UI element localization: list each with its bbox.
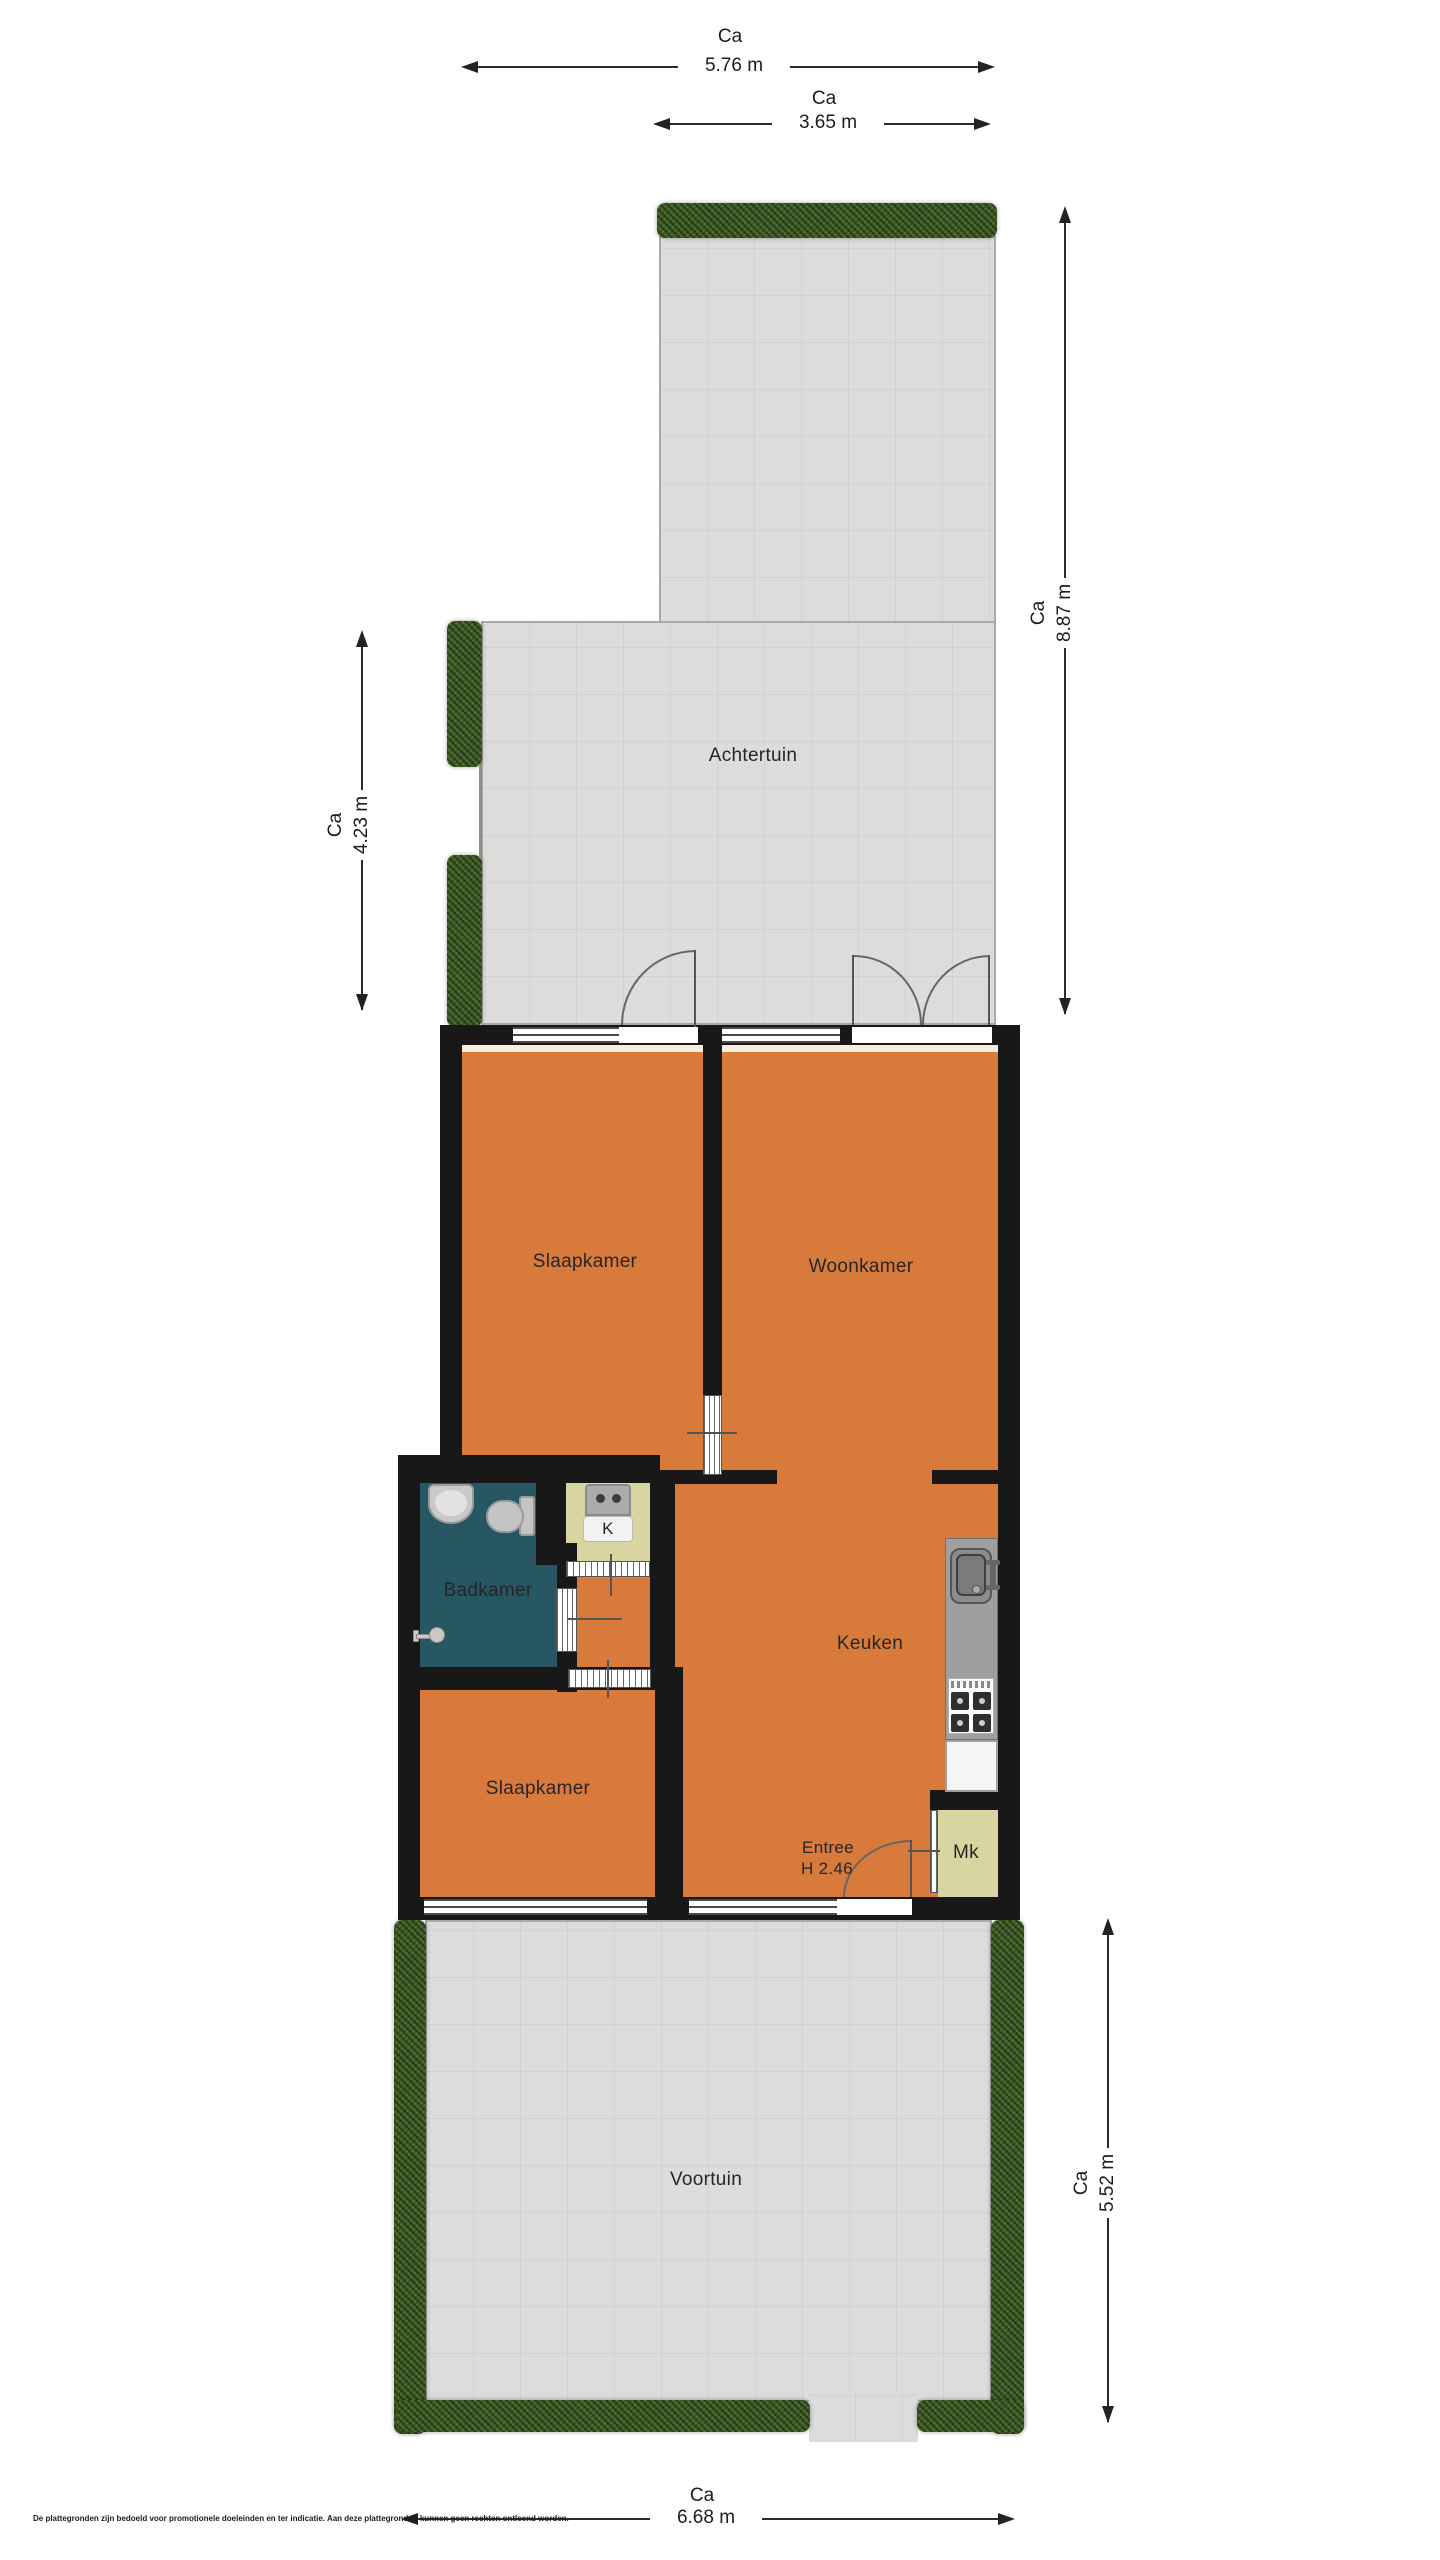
arrow-up-icon — [1102, 1918, 1114, 1935]
achtertuin-upper-terrace — [659, 236, 996, 626]
hedge-voortuin-bottom-left — [396, 2400, 810, 2432]
door-badkamer — [556, 1588, 577, 1652]
room-label-badkamer: Badkamer — [444, 1580, 533, 1602]
dim-top-outer-value: 5.76 m — [678, 55, 790, 77]
kitchen-cabinet — [945, 1740, 998, 1792]
door-slaapkamer-boven — [703, 1395, 722, 1475]
stove-controls — [951, 1681, 991, 1688]
washing-machine-knob — [612, 1494, 621, 1503]
dim-ca: Ca — [1069, 2165, 1095, 2201]
door-swing-line — [567, 1618, 622, 1620]
dim-value: 8.87 m — [1052, 578, 1078, 648]
dim-voortuin-right-label: Ca 5.52 m — [1069, 2113, 1121, 2253]
wall-right — [998, 1025, 1020, 1920]
dim-achtertuin-right-label: Ca 8.87 m — [1026, 543, 1078, 683]
window — [689, 1899, 837, 1915]
room-label-achtertuin: Achtertuin — [709, 745, 798, 767]
arrow-right-icon — [978, 61, 995, 73]
closet-label-mk: Mk — [953, 1842, 979, 1864]
arrow-left-icon — [461, 61, 478, 73]
room-label-entree: Entree — [802, 1838, 854, 1858]
hedge-voortuin-bottom-right — [917, 2400, 1024, 2432]
wall-left-upper — [440, 1025, 462, 1457]
window — [722, 1027, 840, 1043]
shower-head — [429, 1627, 445, 1643]
faucet-icon — [990, 1563, 996, 1588]
wall-step-band — [398, 1455, 660, 1483]
garden-door-opening — [619, 1027, 698, 1043]
wall-hall-keuken — [650, 1470, 675, 1685]
wall-keuken-stub — [932, 1470, 998, 1484]
closet-label-k: K — [602, 1519, 614, 1539]
burner-dot — [957, 1698, 963, 1704]
burner-dot — [979, 1698, 985, 1704]
hedge-achtertuin-left-lower — [447, 855, 482, 1027]
dim-value: 5.52 m — [1095, 2148, 1121, 2218]
voortuin-terrace — [425, 1920, 992, 2402]
washing-machine-icon — [585, 1484, 631, 1516]
arrow-up-icon — [1059, 206, 1071, 223]
dim-voortuin-bottom-ca: Ca — [646, 2485, 758, 2507]
room-label-slaapkamer-boven: Slaapkamer — [533, 1251, 637, 1273]
arrow-down-icon — [356, 994, 368, 1011]
wall-slaapkamer-entree — [655, 1667, 683, 1897]
arrow-right-icon — [974, 118, 991, 130]
toilet-bowl — [486, 1500, 524, 1533]
hedge-achtertuin-left-upper — [447, 621, 482, 767]
door-swing-line — [607, 1660, 609, 1698]
washbasin-bowl — [435, 1490, 467, 1516]
hedge-voortuin-right — [991, 1920, 1024, 2434]
french-doors-opening — [852, 1027, 992, 1043]
dim-ca: Ca — [323, 807, 349, 843]
door-kast-k — [566, 1561, 650, 1577]
arrow-left-icon — [653, 118, 670, 130]
room-label-voortuin: Voortuin — [670, 2169, 742, 2191]
door-leaf — [694, 950, 696, 1027]
dim-achtertuin-left-label: Ca 4.23 m — [323, 755, 375, 895]
room-label-keuken: Keuken — [837, 1633, 903, 1655]
fence-line — [479, 764, 482, 858]
arrow-up-icon — [356, 630, 368, 647]
arrow-right-icon — [998, 2513, 1015, 2525]
room-label-slaapkamer-onder: Slaapkamer — [486, 1778, 590, 1800]
hedge-achtertuin-top — [657, 203, 997, 238]
wall-slaapkamer-woonkamer — [703, 1025, 722, 1395]
room-label-woonkamer: Woonkamer — [809, 1256, 914, 1278]
threshold-strip — [462, 1045, 998, 1052]
sink-drain — [972, 1585, 981, 1594]
burner-dot — [979, 1720, 985, 1726]
dim-top-outer-ca: Ca — [674, 26, 786, 48]
room-label-entree-height: H 2.46 — [801, 1859, 853, 1879]
disclaimer-text: De plattegronden zijn bedoeld voor promo… — [33, 2514, 569, 2523]
wall-mk-top — [930, 1790, 998, 1810]
door-leaf — [852, 955, 854, 1025]
dim-top-inner-value: 3.65 m — [772, 112, 884, 134]
floorplan: Achtertuin Slaapkamer Woonkamer Badkamer… — [0, 0, 1440, 2560]
door-swing-line — [908, 1850, 940, 1852]
arrow-down-icon — [1102, 2406, 1114, 2423]
dim-voortuin-bottom-value: 6.68 m — [650, 2507, 762, 2529]
achtertuin-lower-terrace — [481, 621, 996, 1025]
dim-top-inner-ca: Ca — [768, 88, 880, 110]
window — [513, 1027, 619, 1043]
burner-dot — [957, 1720, 963, 1726]
kitchen-sink-basin — [956, 1554, 986, 1596]
door-leaf — [910, 1840, 912, 1897]
door-slaapkamer-onder — [568, 1669, 651, 1688]
voortuin-path — [809, 2392, 918, 2442]
dim-ca: Ca — [1026, 595, 1052, 631]
washing-machine-knob — [596, 1494, 605, 1503]
window — [424, 1899, 647, 1915]
front-door-opening — [837, 1899, 912, 1915]
door-swing-line — [610, 1554, 612, 1596]
dim-value: 4.23 m — [349, 790, 375, 860]
door-swing-line — [687, 1432, 737, 1434]
hedge-voortuin-left — [394, 1920, 426, 2434]
door-leaf — [988, 955, 990, 1025]
arrow-down-icon — [1059, 998, 1071, 1015]
